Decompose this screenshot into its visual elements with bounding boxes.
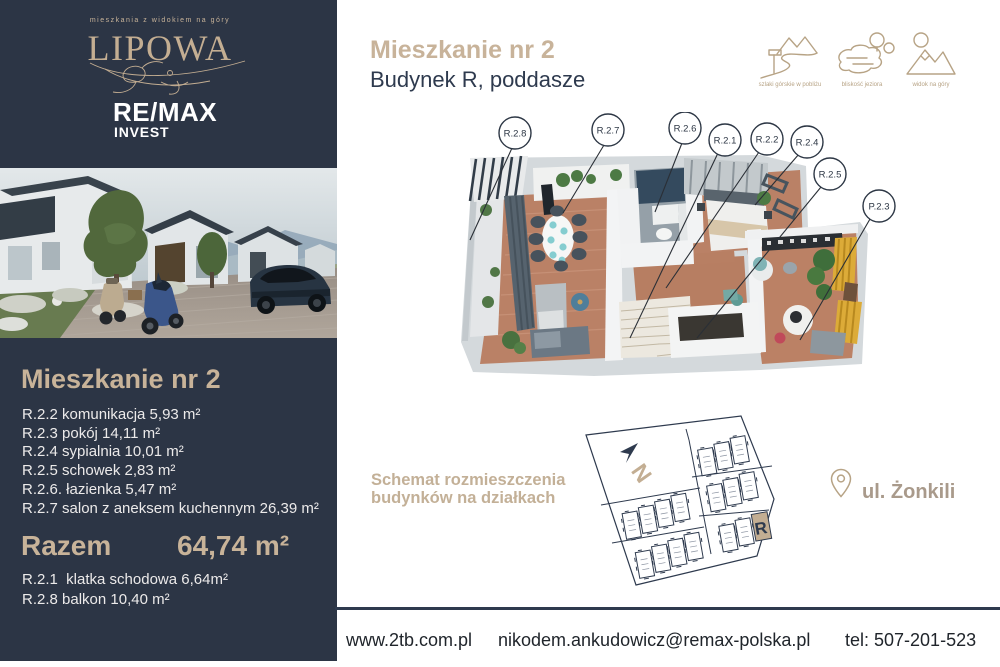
svg-text:R.2.1: R.2.1 [714, 136, 737, 147]
svg-text:R.2.8: R.2.8 [504, 129, 527, 140]
svg-text:R.2.6: R.2.6 [674, 124, 697, 135]
svg-text:R.2.4: R.2.4 [796, 138, 819, 149]
svg-text:P.2.3: P.2.3 [869, 202, 890, 213]
svg-text:R.2.7: R.2.7 [597, 126, 620, 137]
svg-text:widok na góry: widok na góry [911, 82, 949, 88]
svg-text:szlaki górskie w pobliżu: szlaki górskie w pobliżu [759, 82, 822, 88]
svg-text:R.2.5: R.2.5 [819, 170, 842, 181]
svg-text:N: N [626, 459, 657, 488]
svg-text:R.2.2: R.2.2 [756, 135, 779, 146]
svg-text:bliskość jeziora: bliskość jeziora [842, 82, 883, 88]
